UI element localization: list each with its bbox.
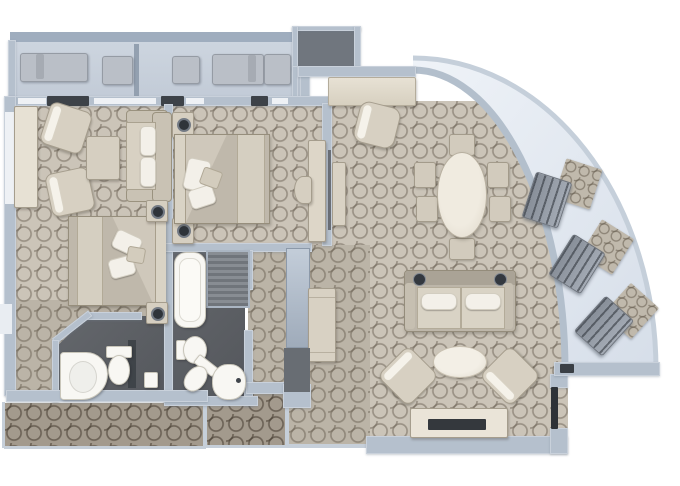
bed-runner <box>237 135 265 223</box>
basin-faucet <box>236 378 241 383</box>
coffee-table-oval <box>433 346 487 378</box>
basin <box>212 364 246 400</box>
balcony-divider <box>134 44 139 98</box>
vanity-counter <box>14 106 38 208</box>
wall-tv-line <box>328 150 331 230</box>
sofa-reading-lamp <box>413 273 426 286</box>
dining-chair <box>414 162 436 188</box>
window <box>272 98 288 104</box>
upper-block-wall-left <box>292 26 298 70</box>
vanity-stool <box>294 176 312 204</box>
lounger-backrest <box>36 54 44 79</box>
corner-basin-bowl <box>69 361 97 393</box>
dining-chair <box>449 238 475 260</box>
dining-chair <box>416 196 438 222</box>
loveseat-sofa <box>124 110 170 202</box>
balcony-wall-left <box>8 40 16 98</box>
bathtub <box>174 252 206 328</box>
sofa-pillow <box>465 293 501 310</box>
veranda-door <box>560 364 574 373</box>
floor-plan <box>0 0 680 486</box>
wardrobe-shelf-line <box>309 352 335 353</box>
bed-master <box>174 134 270 224</box>
corridor-wall-bottom-left <box>4 446 206 449</box>
living-wall-right-upper <box>550 374 568 388</box>
coffee-table <box>86 136 120 180</box>
sofa <box>404 270 516 332</box>
window <box>18 98 46 104</box>
window <box>94 98 156 104</box>
corridor-segment-left <box>4 403 204 447</box>
upper-block-floor <box>298 31 354 66</box>
entry-threshold <box>288 444 368 448</box>
bed-cushion <box>126 246 147 265</box>
sofa-pillow <box>421 293 457 310</box>
dining-chair <box>487 162 509 188</box>
nightstand-lamp <box>177 224 191 238</box>
wall-notch <box>0 304 12 334</box>
lounger-backrest <box>248 55 256 82</box>
lounger <box>20 53 88 82</box>
ottoman <box>264 54 291 85</box>
sofa-arm <box>405 283 415 329</box>
nightstand-lamp <box>177 118 191 132</box>
window <box>186 98 204 104</box>
bed-second-bedroom <box>68 216 166 306</box>
side-table <box>102 56 133 85</box>
nightstand-lamp <box>151 205 165 219</box>
lounger <box>212 54 264 85</box>
toilet <box>106 346 130 386</box>
sofa-pillow <box>140 126 156 156</box>
dispenser <box>144 372 158 388</box>
tv <box>428 419 486 430</box>
bathroom-right-wall-lower <box>244 330 253 406</box>
living-wall-top <box>298 66 416 77</box>
dining-table <box>437 152 487 238</box>
bed-runner <box>77 217 103 305</box>
wardrobe-cabinet <box>308 288 336 362</box>
suite-wall-bottom-left <box>6 390 208 402</box>
toilet-bowl <box>108 355 130 385</box>
living-wall-console <box>332 162 346 226</box>
closet-dark-panel <box>284 348 310 392</box>
bed-headboard <box>155 217 166 305</box>
upper-block-wall-top <box>292 26 361 31</box>
sofa-pillow <box>140 157 156 187</box>
shower <box>206 250 250 308</box>
guest-bath-top-wall <box>86 312 142 320</box>
side-table <box>172 56 200 84</box>
wardrobe-shelf-line <box>309 297 335 298</box>
window-left <box>5 112 14 204</box>
armchair-back <box>47 175 65 214</box>
living-wall-right-lower <box>550 428 568 454</box>
suite-entry-door <box>551 387 558 429</box>
corridor-wall-left <box>2 402 5 448</box>
nightstand-lamp <box>151 307 165 321</box>
mirror-door <box>286 248 310 348</box>
corridor-wall-bottom-center <box>206 445 288 448</box>
dining-chair <box>489 196 511 222</box>
upper-block-wall-right <box>354 26 361 70</box>
living-wall-bottom <box>366 436 568 454</box>
balcony-sliding-door <box>251 96 268 106</box>
bathtub-basin <box>179 258 201 322</box>
